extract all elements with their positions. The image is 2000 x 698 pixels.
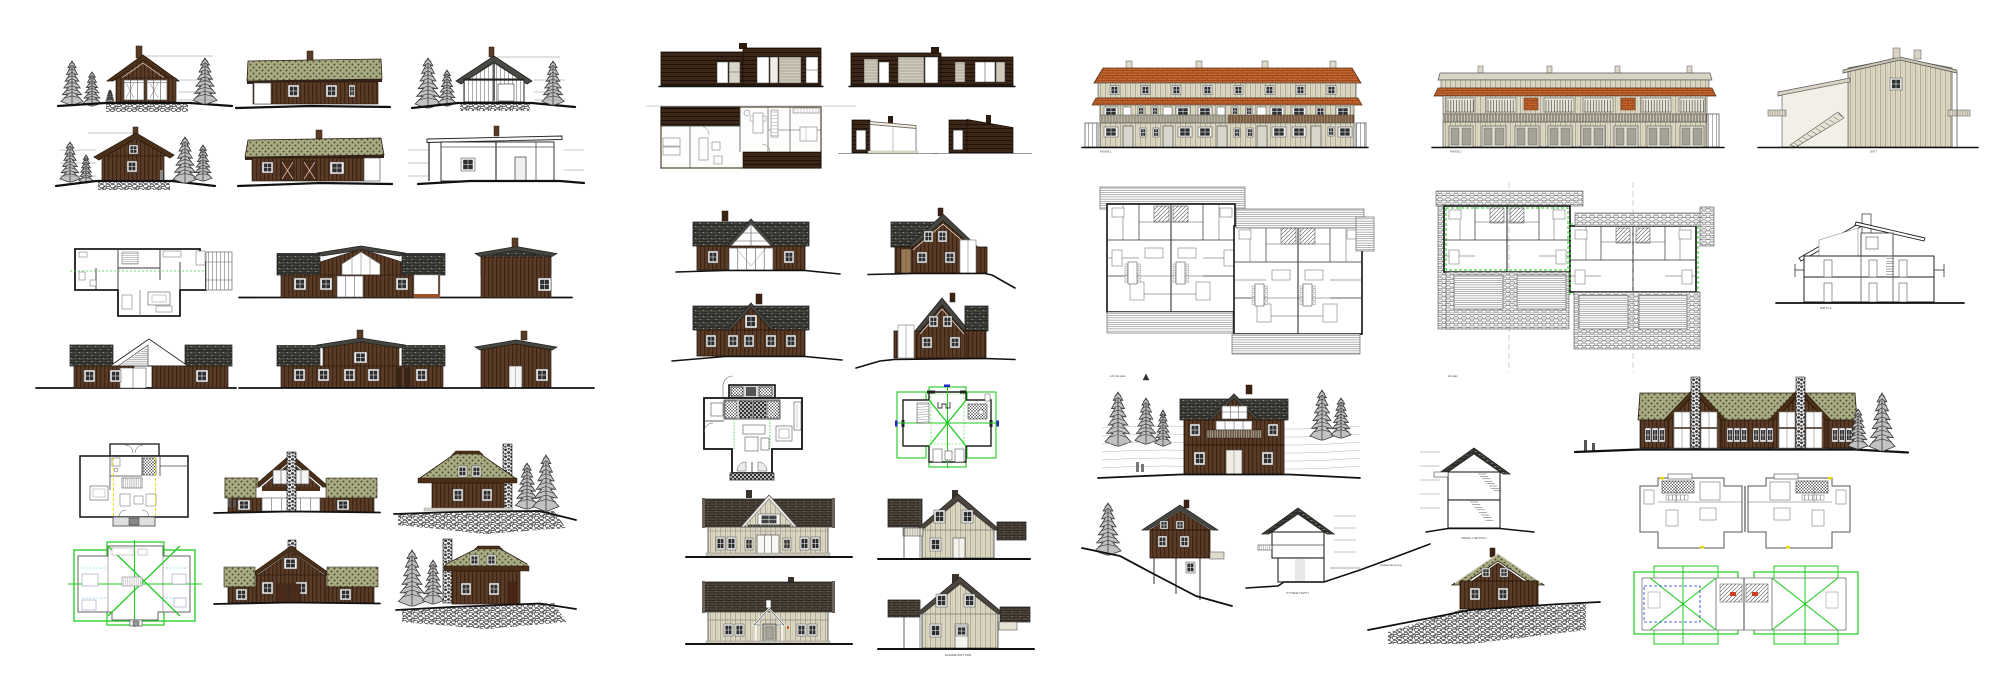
svg-text:eksisterende terreng: eksisterende terreng xyxy=(1380,564,1402,567)
svg-text:HYTTEFELT SNITT 1: HYTTEFELT SNITT 1 xyxy=(1287,592,1311,595)
svg-text:SNITT A-A: SNITT A-A xyxy=(1820,307,1832,310)
svg-text:HMS/ELL 1 SECTION 1: HMS/ELL 1 SECTION 1 xyxy=(1461,537,1487,540)
svg-text:1A first plan: 1A first plan xyxy=(1110,374,1126,378)
svg-text:FASADE 1: FASADE 1 xyxy=(1100,151,1112,154)
svg-text:SNITT: SNITT xyxy=(1870,151,1877,154)
svg-text:FASADE 2: FASADE 2 xyxy=(1450,151,1462,154)
svg-text:FASADE MOT SOR: FASADE MOT SOR xyxy=(945,653,972,657)
svg-text:2A plan: 2A plan xyxy=(1448,374,1458,378)
